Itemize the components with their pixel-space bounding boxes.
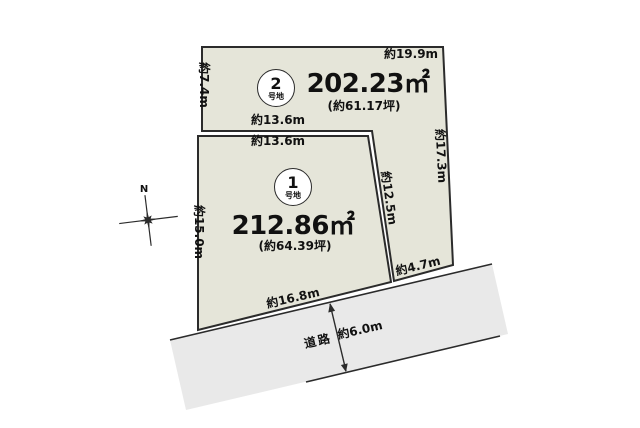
parcel2-area: 202.23㎡: [307, 71, 430, 97]
land-plot-diagram: N 約19.9m 約7.4m 2 号地 202.23㎡ (約61.17坪) 約1…: [0, 0, 640, 428]
compass-north-label: N: [140, 185, 148, 195]
parcel1-number: 1: [287, 175, 298, 191]
parcel2-number: 2: [270, 76, 281, 92]
parcel2-bottom-dimension: 約13.6m: [251, 114, 305, 126]
parcel1-area-tsubo: (約64.39坪): [259, 240, 332, 252]
parcel1-number-badge: 1 号地: [274, 168, 312, 206]
compass-icon: [116, 192, 181, 250]
parcel1-area: 212.86㎡: [232, 213, 355, 239]
parcel2-area-tsubo: (約61.17坪): [328, 100, 401, 112]
parcel1-top-dimension: 約13.6m: [251, 135, 305, 147]
parcel2-top-dimension: 約19.9m: [384, 48, 438, 60]
parcel2-number-suffix: 号地: [268, 93, 284, 101]
parcel2-right-dimension: 約17.3m: [434, 129, 449, 184]
parcel1-left-dimension: 約15.0m: [193, 205, 205, 259]
parcel1-number-suffix: 号地: [285, 192, 301, 200]
parcel2-number-badge: 2 号地: [257, 69, 295, 107]
parcel2-left-dimension: 約7.4m: [198, 62, 210, 108]
